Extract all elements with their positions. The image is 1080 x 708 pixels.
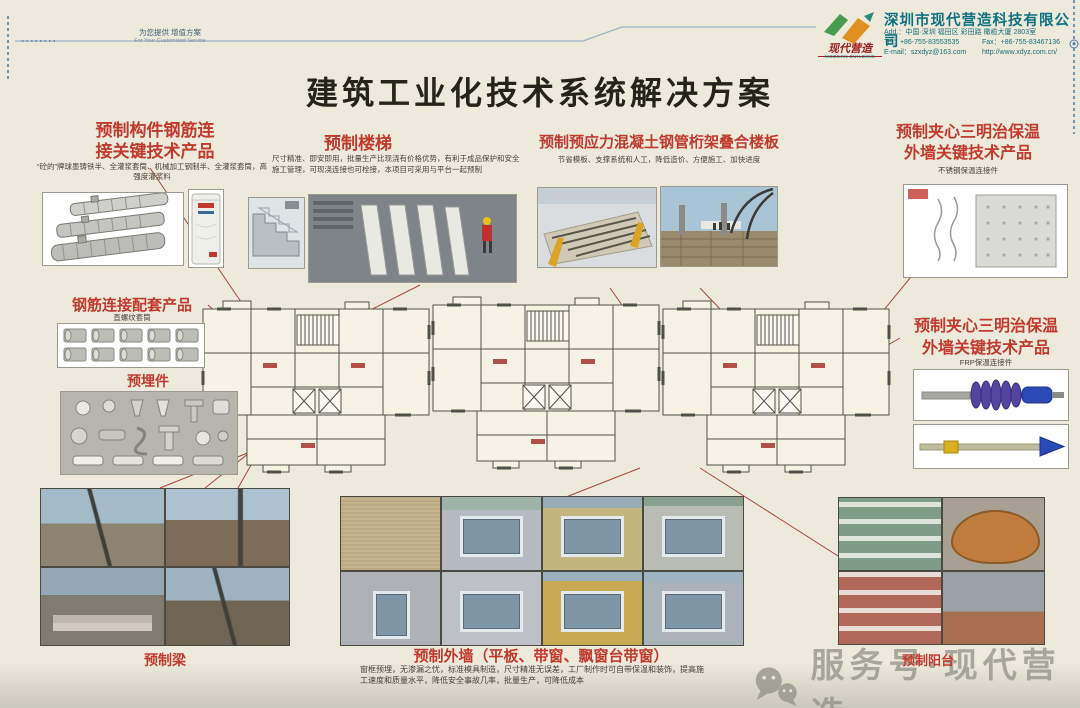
balcony-photo <box>839 498 941 570</box>
slab-truss-illustration <box>538 188 656 267</box>
window <box>460 516 523 557</box>
wall-panel-photo <box>341 572 440 645</box>
window <box>561 591 624 632</box>
wechat-watermark: 服务号·现代营造 <box>752 638 1080 708</box>
window <box>662 516 725 557</box>
company-contact-info: Add.：中国·深圳 福田区 彩田路 橄榄大厦 2803室 Tel：+86-75… <box>884 28 1078 58</box>
slab-truss-photo <box>537 187 657 268</box>
building-floor-plan <box>197 289 895 475</box>
sandwich-right-desc: FRP保温连接件 <box>913 357 1059 368</box>
wall-panel-photo <box>543 497 642 570</box>
company-address: Add.：中国·深圳 福田区 彩田路 橄榄大厦 2803室 <box>884 28 1078 38</box>
beam-photo <box>166 489 289 566</box>
sandwich-right-title-line2: 外墙关键技术产品 <box>888 334 1080 358</box>
window <box>460 591 523 632</box>
beam-photo <box>41 489 164 566</box>
thread-sleeve-photo <box>57 323 205 368</box>
frp-connector-illustration-1 <box>914 370 1068 420</box>
balcony-photo-grid <box>838 497 1045 645</box>
company-tel: Tel：+86-755-83553535 <box>884 38 980 48</box>
wall-panel-photo <box>644 572 743 645</box>
wall-panel-photo <box>543 572 642 645</box>
site-crane-illustration <box>661 187 777 266</box>
embedded-section-title: 预埋件 <box>78 371 218 391</box>
stairs-section-desc: 尺寸精准、即安即用，批量生产比现浇有价格优势，有利于成品保护和安全施工管理，可现… <box>272 154 520 175</box>
exterior-wall-section-desc: 窗框预埋，无渗漏之忧，标准模具制造，尺寸精准无误差，工厂制作时可自带保温和装饰，… <box>360 664 705 686</box>
window <box>662 591 725 632</box>
frp-connector-photo-2 <box>913 424 1069 469</box>
watermark-text: 服务号·现代营造 <box>810 638 1080 708</box>
grout-sleeve-photo <box>42 192 184 266</box>
exterior-wall-section-title: 预制外墙（平板、带窗、飘窗台带窗） <box>340 645 742 666</box>
sandwich-top-desc: 不锈钢保温连接件 <box>893 165 1043 176</box>
company-fax: Fax：+86-755-83467136 <box>982 38 1078 48</box>
stairs-section-title: 预制楼梯 <box>258 129 458 154</box>
stairs-flat-photo <box>248 197 305 269</box>
wall-panel-photo <box>442 497 541 570</box>
company-logo-icon <box>820 8 882 62</box>
poster-page: 为您提供 增值方案 For Your Customized Service 现代… <box>0 0 1080 708</box>
beam-photo <box>41 568 164 645</box>
slab-section-title: 预制预应力混凝土钢管桁架叠合楼板 <box>528 131 790 152</box>
sandwich-top-title-line2: 外墙关键技术产品 <box>868 139 1068 163</box>
balcony-photo <box>943 572 1045 644</box>
tagline-en: For Your Customized Service <box>100 38 240 44</box>
rebar-section-title-line2: 接关键技术产品 <box>55 137 255 162</box>
grout-bag-photo <box>188 189 224 268</box>
grout-sleeve-illustration <box>43 193 183 265</box>
coupler-section-desc: 直螺纹套筒 <box>76 312 188 323</box>
stairs-stack-illustration <box>309 195 516 282</box>
sandwich-right-title-line1: 预制夹心三明治保温 <box>888 312 1080 336</box>
steel-connector-photo <box>903 184 1068 278</box>
steel-connector-illustration <box>904 185 1067 277</box>
embedded-parts-photo <box>60 391 238 475</box>
frp-connector-illustration-2 <box>914 425 1068 468</box>
wechat-icon <box>752 664 800 708</box>
slab-section-desc: 节省模板、支撑系统和人工，降低造价、方便施工、加快进度 <box>538 154 780 165</box>
company-email: E-mail：szxdyz@163.com <box>884 48 980 58</box>
stairs-stack-photo <box>308 194 517 283</box>
window <box>561 516 624 557</box>
site-crane-photo <box>660 186 778 267</box>
window <box>373 591 411 639</box>
curved-balcony <box>951 510 1040 564</box>
stairs-flat-illustration <box>249 198 304 268</box>
embedded-parts-illustration <box>61 392 237 474</box>
wall-panel-photo <box>442 572 541 645</box>
wall-panel-photo <box>644 497 743 570</box>
rebar-section-desc: “砼的”牌球墨铸铁半、全灌浆套筒、机械加工钢制半、全灌浆套筒，高强度灌浆料 <box>36 162 268 182</box>
tagline-cn: 为您提供 增值方案 <box>100 27 240 38</box>
exterior-wall-photo-grid <box>340 496 744 646</box>
balcony-photo <box>943 498 1045 570</box>
thread-sleeve-illustration <box>58 324 204 367</box>
grout-bag-illustration <box>189 190 223 267</box>
beam-photo-grid <box>40 488 290 646</box>
beam-photo <box>166 568 289 645</box>
page-title: 建筑工业化技术系统解决方案 <box>0 68 1080 114</box>
balcony-section-title: 预制阳台 <box>858 650 998 669</box>
company-website[interactable]: http://www.xdyz.com.cn/ <box>982 48 1078 58</box>
beam-section-title: 预制梁 <box>90 650 240 670</box>
wall-panel-photo <box>341 497 440 570</box>
frp-connector-photo-1 <box>913 369 1069 421</box>
balcony-photo <box>839 572 941 644</box>
